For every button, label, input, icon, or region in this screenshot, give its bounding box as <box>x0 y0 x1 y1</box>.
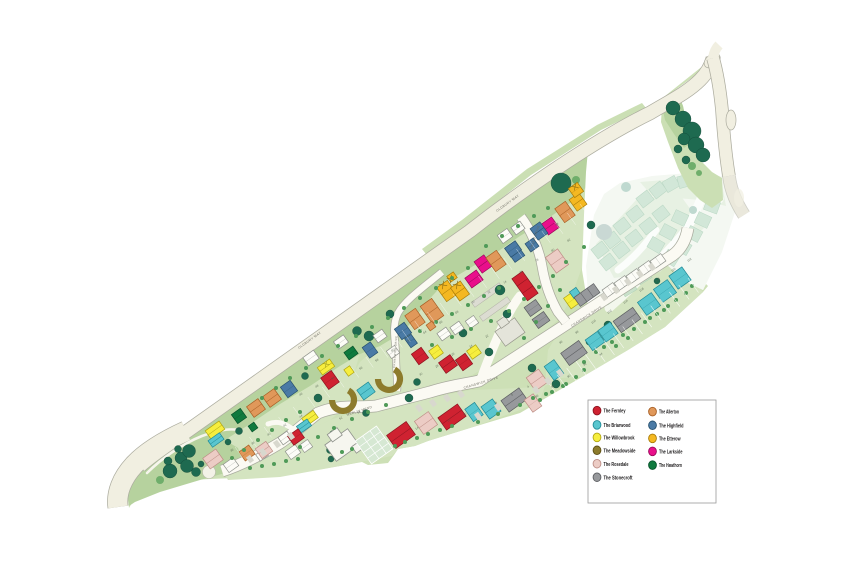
svg-text:The Allerton: The Allerton <box>659 410 679 416</box>
svg-text:The Larkside: The Larkside <box>659 450 683 456</box>
svg-text:The Willowbrook: The Willowbrook <box>604 436 636 442</box>
svg-text:The Meadowside: The Meadowside <box>604 448 636 454</box>
svg-text:The Rosedale: The Rosedale <box>604 462 629 468</box>
svg-text:The Hawthorn: The Hawthorn <box>659 463 682 469</box>
svg-text:The Stonecroft: The Stonecroft <box>604 475 633 481</box>
svg-text:The Highfield: The Highfield <box>659 423 684 429</box>
svg-text:The Briarwood: The Briarwood <box>604 423 631 429</box>
svg-text:The Fernley: The Fernley <box>604 409 627 415</box>
svg-text:The Etterow: The Etterow <box>659 437 681 443</box>
